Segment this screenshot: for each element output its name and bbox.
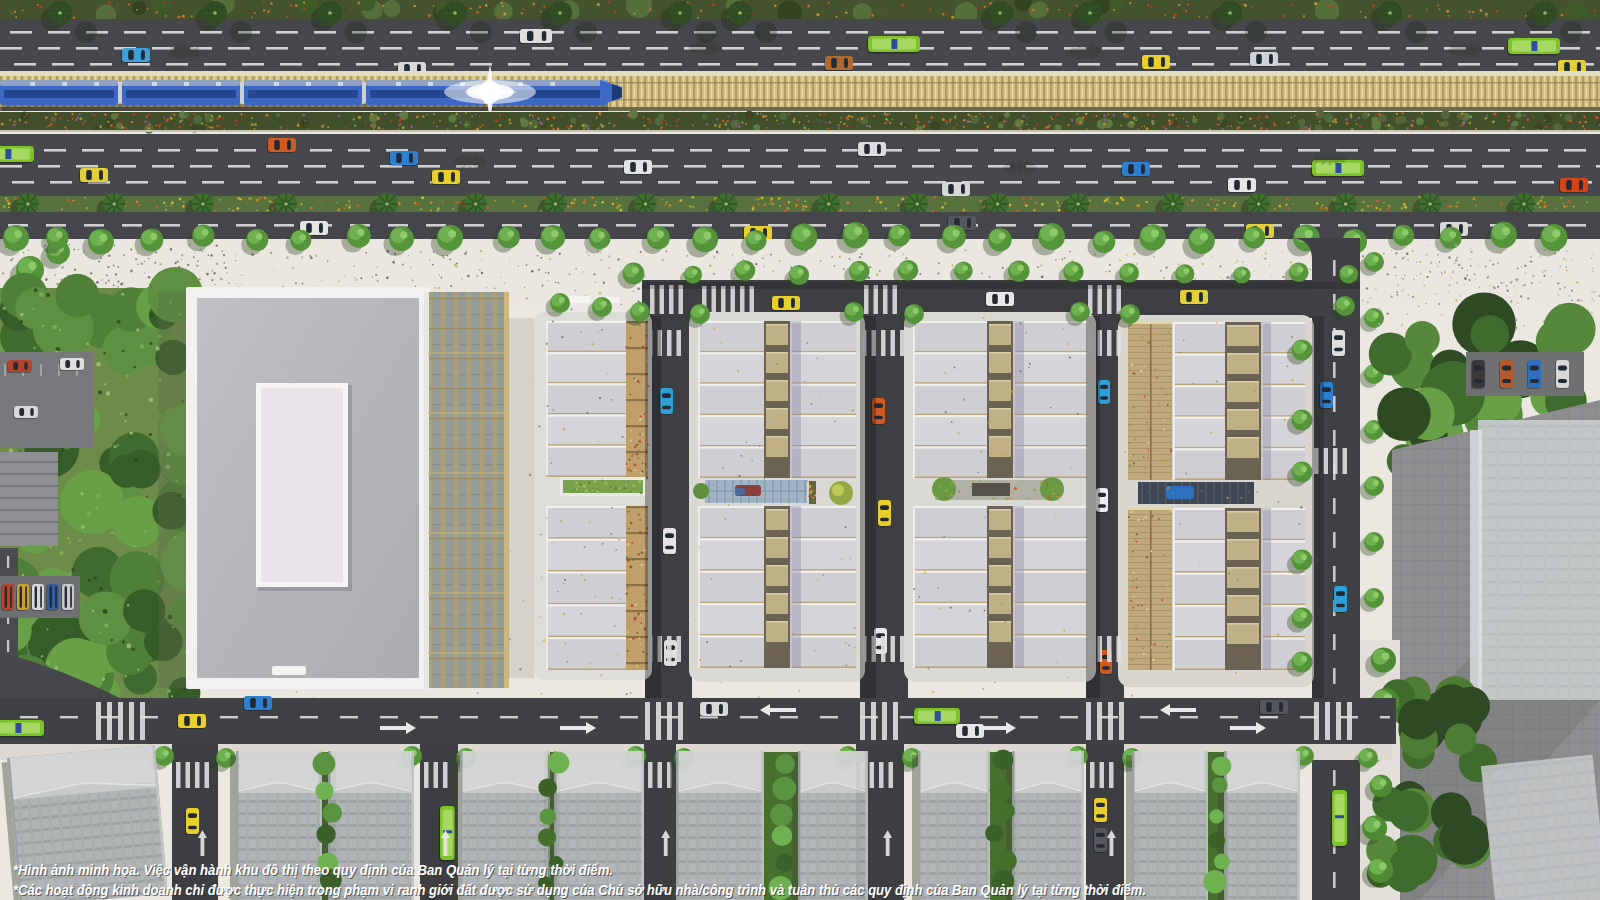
svg-text:*Hình ảnh minh họa. Việc vận h: *Hình ảnh minh họa. Việc vận hành khu đô… xyxy=(13,861,613,878)
svg-text:*Các hoạt động kinh doanh chỉ: *Các hoạt động kinh doanh chỉ được thực … xyxy=(13,881,1146,898)
